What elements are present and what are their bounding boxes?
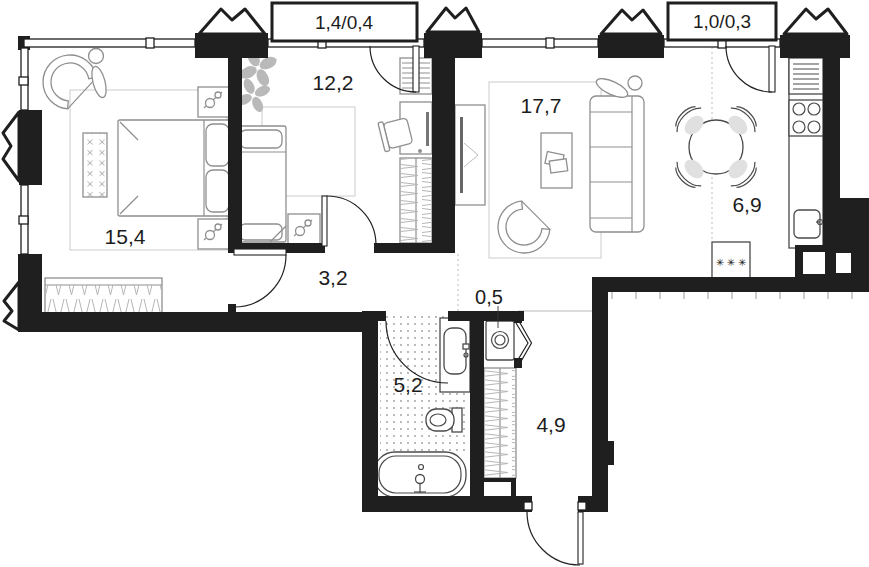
living-room-area-label: 17,7	[521, 94, 562, 117]
single-bed	[236, 126, 286, 242]
bathroom-area-label: 5,2	[393, 373, 422, 396]
bedroom-furniture	[43, 49, 230, 314]
wardrobe-bedroom	[45, 278, 162, 313]
pillow	[206, 170, 229, 212]
double-bed	[118, 120, 230, 216]
bay-zigzag-icon	[3, 112, 19, 181]
corridor-area-label: 3,2	[318, 266, 347, 289]
tv-unit	[455, 105, 485, 205]
door-bedroom	[234, 249, 286, 307]
wardrobe-hallway	[484, 368, 516, 478]
bathroom-fixtures	[374, 316, 516, 500]
pillow	[206, 124, 229, 166]
wall-kitchen-right	[823, 56, 840, 198]
bay-pier-left	[19, 110, 42, 185]
vent-grille-icon	[789, 58, 823, 94]
vent-shaft	[803, 252, 825, 274]
door-kitchen-balcony	[726, 46, 775, 92]
bedroom-area-label: 15,4	[105, 225, 146, 248]
tv-icon	[460, 117, 463, 193]
faucet-icon	[463, 344, 469, 349]
window-living	[482, 39, 598, 47]
pillow	[240, 130, 282, 148]
facade-tent-icon	[427, 8, 479, 32]
exterior-ticks	[612, 292, 852, 299]
sofa	[590, 96, 644, 232]
balcony-right-box: 1,0/0,3	[668, 3, 776, 40]
coffee-table	[541, 133, 572, 188]
kitchen-sink-icon	[794, 210, 823, 238]
washing-machine-icon	[486, 321, 514, 360]
entrance-door	[524, 502, 586, 565]
wall-kids-living	[432, 43, 455, 253]
bay-zigzag-icon	[4, 282, 19, 330]
facade-tent-icon	[199, 9, 265, 34]
floor-plan-page: ✳ ✳ ✳	[0, 0, 869, 567]
armchair-living	[498, 201, 550, 253]
facade-pier	[780, 35, 850, 58]
monitor-icon	[426, 112, 429, 146]
wardrobe-kids	[400, 158, 432, 243]
facade-tent-icon	[601, 10, 661, 34]
hallway-area-label: 4,9	[536, 413, 565, 436]
vanity-sink	[440, 318, 470, 392]
kitchen-counter	[789, 58, 823, 248]
wall-hallway-right	[592, 277, 608, 512]
nightstand-bottom	[198, 219, 230, 249]
vent-shaft	[836, 253, 851, 273]
facade-pier	[195, 33, 268, 58]
window-bedroom	[24, 39, 195, 47]
facade-pier	[424, 33, 482, 58]
bathtub-icon	[374, 452, 466, 497]
nightstand-kids	[288, 214, 320, 244]
floor-lamp-bedroom	[89, 49, 109, 100]
kitchen-area-label: 6,9	[732, 193, 761, 216]
wall-bathroom-right	[470, 313, 484, 512]
bedside-rug	[83, 133, 107, 197]
wall-bedroom-kids	[228, 43, 242, 253]
laundry-area-label: 0,5	[475, 286, 503, 308]
wall-bottom-left	[18, 312, 368, 332]
tub-faucet-icon	[416, 475, 425, 484]
facade-tent-icon	[784, 9, 847, 34]
balcony-left-box: 1,4/0,4	[272, 3, 417, 41]
wall-bathroom-left	[362, 312, 378, 512]
door-kids-room	[322, 196, 376, 246]
balcony-left-label: 1,4/0,4	[315, 12, 374, 33]
toilet-icon	[426, 408, 462, 432]
nightstand-top	[198, 87, 230, 117]
fridge-snowflakes-icon: ✳ ✳ ✳	[716, 257, 747, 268]
facade-pier	[598, 35, 664, 58]
wall-bottom-right	[592, 277, 800, 292]
balcony-right-label: 1,0/0,3	[693, 11, 751, 32]
fridge-icon: ✳ ✳ ✳	[712, 242, 750, 278]
floor-plan-drawing: ✳ ✳ ✳	[0, 0, 869, 567]
stove-icon	[789, 100, 823, 136]
door-laundry-bifold	[516, 322, 532, 364]
kids-room-area-label: 12,2	[313, 71, 354, 94]
